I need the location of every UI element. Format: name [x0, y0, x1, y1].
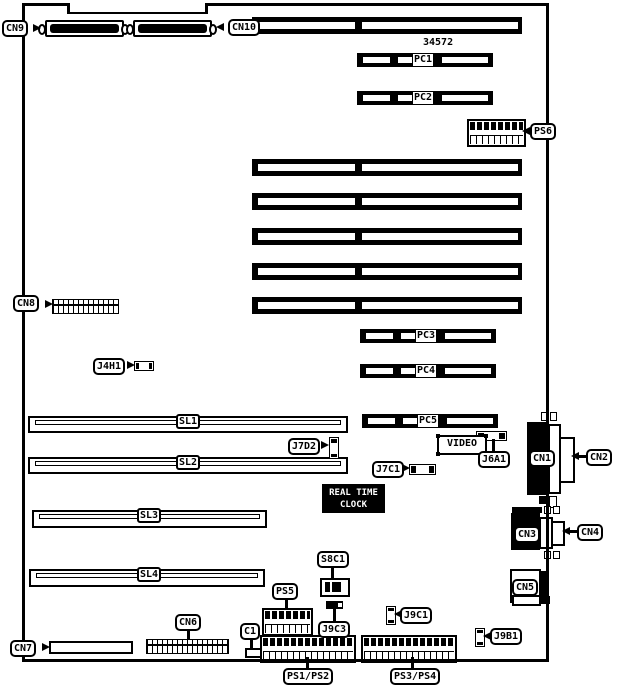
isa-slot [252, 263, 522, 280]
real-time-clock-chip: REAL TIME CLOCK [322, 484, 385, 513]
callout-cn8: CN8 [13, 295, 39, 312]
callout-cn9: CN9 [2, 20, 28, 37]
callout-cn1: CN1 [529, 450, 555, 467]
pc2-label: PC2 [412, 91, 434, 105]
callout-j4h1: J4H1 [93, 358, 125, 375]
sl-slot-sl4: SL4 [29, 569, 265, 587]
callout-j6a1: J6A1 [478, 451, 510, 468]
pc-slot-pc2: PC2 [357, 91, 493, 105]
board-edge-top-a [22, 3, 70, 6]
pc-slot-pc5: PC5 [362, 414, 498, 428]
callout-s8c1: S8C1 [317, 551, 349, 568]
callout-cn5: CN5 [512, 579, 538, 596]
sl4-label: SL4 [137, 567, 161, 582]
callout-ps1-ps2: PS1/PS2 [283, 668, 333, 685]
callout-j9c1: J9C1 [400, 607, 432, 624]
isa-slot [252, 159, 522, 176]
leader-j7d2 [321, 441, 329, 449]
callout-cn2: CN2 [586, 449, 612, 466]
pc3-label: PC3 [415, 329, 437, 343]
ps6-power-connector [467, 119, 526, 147]
callout-j7d2: J7D2 [288, 438, 320, 455]
rtc-line2: CLOCK [322, 499, 385, 511]
j7c1-jumper [409, 464, 436, 475]
leader-ps6 [522, 127, 530, 135]
callout-j9c3: J9C3 [318, 621, 350, 638]
sl-slot-sl2: SL2 [28, 457, 348, 474]
cn10-port-connector [133, 20, 212, 37]
part-number: 34572 [423, 37, 453, 49]
j7d2-jumper [329, 437, 339, 459]
pc1-label: PC1 [412, 53, 434, 67]
sl-slot-sl3: SL3 [32, 510, 267, 528]
callout-cn10: CN10 [228, 19, 260, 36]
leader-cn10 [216, 23, 224, 31]
leader-cn6 [187, 630, 190, 640]
cn8-header-connector [52, 299, 119, 314]
video-tab [436, 434, 440, 438]
pc-slot-pc4: PC4 [360, 364, 496, 378]
callout-cn4: CN4 [577, 524, 603, 541]
pc4-label: PC4 [415, 364, 437, 378]
board-edge-right [546, 3, 549, 662]
sl3-label: SL3 [137, 508, 161, 523]
cn5-lower-box [512, 595, 541, 606]
leader-cn8 [45, 300, 53, 308]
rtc-line1: REAL TIME [322, 487, 385, 499]
sl2-label: SL2 [176, 455, 200, 470]
isa-slot [252, 17, 522, 34]
video-tab [436, 452, 440, 456]
leader-cn7 [42, 643, 50, 651]
cn3-screw-peg [553, 506, 560, 514]
pc5-label: PC5 [417, 414, 439, 428]
leader-cn4-arrow [562, 527, 570, 535]
cn3-screw-peg [553, 551, 560, 559]
board-edge-left [22, 3, 25, 662]
callout-j7c1: J7C1 [372, 461, 404, 478]
leader-s8c1 [331, 566, 334, 580]
j9c3-connector-cell [337, 602, 343, 608]
callout-cn6: CN6 [175, 614, 201, 631]
j4h1-jumper [134, 361, 154, 371]
callout-ps6: PS6 [530, 123, 556, 140]
s8c1-cell [325, 582, 330, 592]
cn2-dsub-face [559, 437, 575, 483]
board-edge-bottom [22, 659, 549, 662]
port-screw-ear [126, 24, 134, 35]
pc-slot-pc1: PC1 [357, 53, 493, 67]
isa-slot [252, 297, 522, 314]
pc-slot-pc3: PC3 [360, 329, 496, 343]
video-tab [484, 434, 488, 438]
s8c1-switch [320, 578, 350, 597]
board-notch-bottom [67, 12, 208, 14]
cn1-screw-peg [550, 412, 557, 421]
sl-slot-sl1: SL1 [28, 416, 348, 433]
callout-ps3-ps4: PS3/PS4 [390, 668, 440, 685]
sl1-label: SL1 [176, 414, 200, 429]
s8c1-cell [332, 582, 341, 592]
motherboard-diagram: CN9 CN10 34572 PC1 PC2 PC3 PC4 PC5 PS6 C… [0, 0, 621, 689]
isa-slot [252, 193, 522, 210]
ps5-power-connector [262, 608, 313, 636]
video-label: VIDEO [447, 438, 477, 449]
callout-ps5: PS5 [272, 583, 298, 600]
cn7-connector [49, 641, 133, 654]
isa-slot [252, 228, 522, 245]
leader-j4h1 [127, 361, 135, 369]
cn6-header-connector [146, 639, 229, 654]
board-edge-top-b [205, 3, 549, 6]
callout-c1: C1 [240, 623, 260, 640]
leader-cn9 [33, 24, 41, 32]
cn9-port-connector [45, 20, 124, 37]
leader-cn2-arrow [571, 452, 579, 460]
callout-cn7: CN7 [10, 640, 36, 657]
callout-cn3: CN3 [514, 526, 540, 543]
callout-j9b1: J9B1 [490, 628, 522, 645]
